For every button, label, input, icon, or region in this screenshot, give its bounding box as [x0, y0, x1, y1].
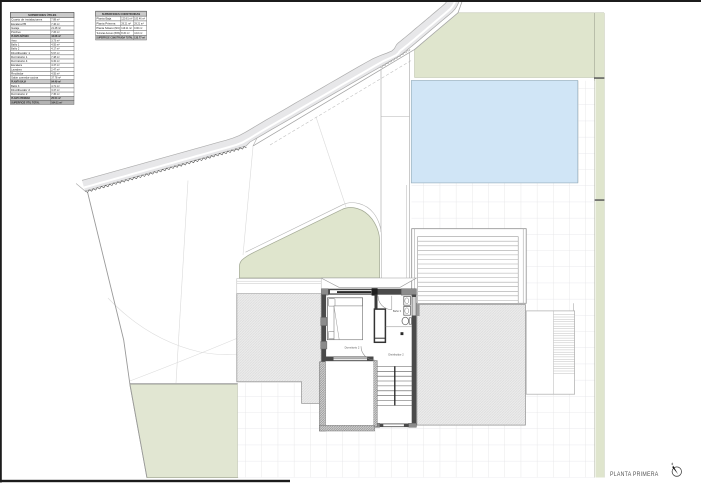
svg-text:5.97 m²: 5.97 m² [51, 52, 59, 55]
svg-text:Distribuidor 2: Distribuidor 2 [11, 89, 31, 92]
svg-text:4.71 m²: 4.71 m² [51, 85, 59, 88]
svg-text:Recibidor: Recibidor [11, 72, 23, 75]
svg-text:Porches: Porches [11, 31, 21, 34]
svg-text:4.55 m²: 4.55 m² [51, 72, 59, 75]
svg-text:Lavadero: Lavadero [11, 68, 22, 71]
svg-text:4.47 m²: 4.47 m² [51, 64, 59, 67]
svg-text:Aseo: Aseo [11, 39, 17, 42]
svg-text:44.08 m²: 44.08 m² [51, 34, 61, 38]
svg-text:Dormitorio 4: Dormitorio 4 [11, 60, 28, 63]
svg-text:4.55 m²: 4.55 m² [51, 43, 59, 46]
svg-text:25.54 m²: 25.54 m² [51, 96, 61, 100]
svg-text:PLANTA SÓTANO: PLANTA SÓTANO [11, 35, 29, 38]
svg-text:Dormitorio 1: Dormitorio 1 [11, 56, 28, 59]
svg-text:164.11 m²: 164.11 m² [51, 100, 62, 104]
svg-text:3.47 m²: 3.47 m² [51, 89, 59, 92]
svg-text:8.20 m²: 8.20 m² [121, 32, 129, 35]
svg-text:3.73 m²: 3.73 m² [51, 39, 59, 42]
svg-text:Terrazas Acceso (50%): Terrazas Acceso (50%) [96, 32, 120, 35]
svg-text:4.10 m²: 4.10 m² [134, 32, 142, 35]
svg-text:Salón comedor cocina: Salón comedor cocina [11, 77, 39, 80]
svg-text:SUPERFICIE CONSTRUIDA TOTAL: SUPERFICIE CONSTRUIDA TOTAL [96, 37, 133, 40]
svg-text:SUPERFICIES CONSTRUIDAS: SUPERFICIES CONSTRUIDAS [102, 12, 141, 16]
svg-text:PLANTA PRIMERA: PLANTA PRIMERA [11, 97, 30, 100]
svg-text:37.78 m²: 37.78 m² [51, 77, 61, 80]
svg-text:Escalera: Escalera [11, 64, 23, 67]
svg-text:119.11 m²: 119.11 m² [121, 27, 132, 30]
svg-text:SUPERFICIE ÚTIL TOTAL: SUPERFICIE ÚTIL TOTAL [11, 101, 40, 104]
svg-text:Planta Primera: Planta Primera [96, 22, 116, 25]
svg-text:7.26 m²: 7.26 m² [51, 31, 59, 34]
svg-text:Baño 1: Baño 1 [11, 43, 20, 46]
svg-text:2.47 m²: 2.47 m² [51, 68, 59, 71]
svg-text:4.17 m²: 4.17 m² [51, 48, 59, 51]
svg-text:Dormitorio 2: Dormitorio 2 [11, 93, 28, 96]
svg-text:Distribuidor 1: Distribuidor 1 [11, 52, 31, 55]
svg-text:Cuarto de instalaciones: Cuarto de instalaciones [11, 19, 43, 22]
svg-text:Distribuidor 2: Distribuidor 2 [388, 353, 404, 357]
svg-text:Dormitorio 2: Dormitorio 2 [345, 345, 360, 349]
svg-text:21.48 m²: 21.48 m² [51, 27, 61, 30]
svg-text:Baño 2: Baño 2 [11, 48, 20, 51]
svg-text:133.77 m²: 133.77 m² [134, 36, 145, 40]
svg-text:Escalera PB: Escalera PB [11, 23, 26, 26]
svg-text:120.61 m²: 120.61 m² [121, 18, 132, 21]
svg-text:Baño 3: Baño 3 [11, 85, 20, 88]
svg-text:29.21 m²: 29.21 m² [121, 22, 131, 25]
svg-text:29.21 m²: 29.21 m² [134, 22, 144, 25]
svg-text:Planta Sótano (NC): Planta Sótano (NC) [96, 27, 120, 30]
svg-text:94.49 m²: 94.49 m² [51, 80, 61, 84]
svg-text:7.46 m²: 7.46 m² [51, 23, 59, 26]
svg-text:7.48 m²: 7.48 m² [51, 56, 59, 59]
svg-text:Baño 3: Baño 3 [393, 309, 402, 313]
svg-text:9.32 m²: 9.32 m² [51, 60, 59, 63]
svg-text:7.36 m²: 7.36 m² [51, 93, 59, 96]
svg-text:Garaje: Garaje [11, 27, 20, 30]
svg-text:100.46 m²: 100.46 m² [134, 18, 145, 21]
svg-text:0.00 m²: 0.00 m² [134, 27, 142, 30]
svg-text:PLANTA PRIMERA: PLANTA PRIMERA [610, 471, 659, 478]
svg-text:Planta Baja: Planta Baja [96, 18, 112, 21]
svg-text:PLANTA BAJA: PLANTA BAJA [11, 81, 26, 84]
svg-text:7.88 m²: 7.88 m² [51, 19, 59, 22]
